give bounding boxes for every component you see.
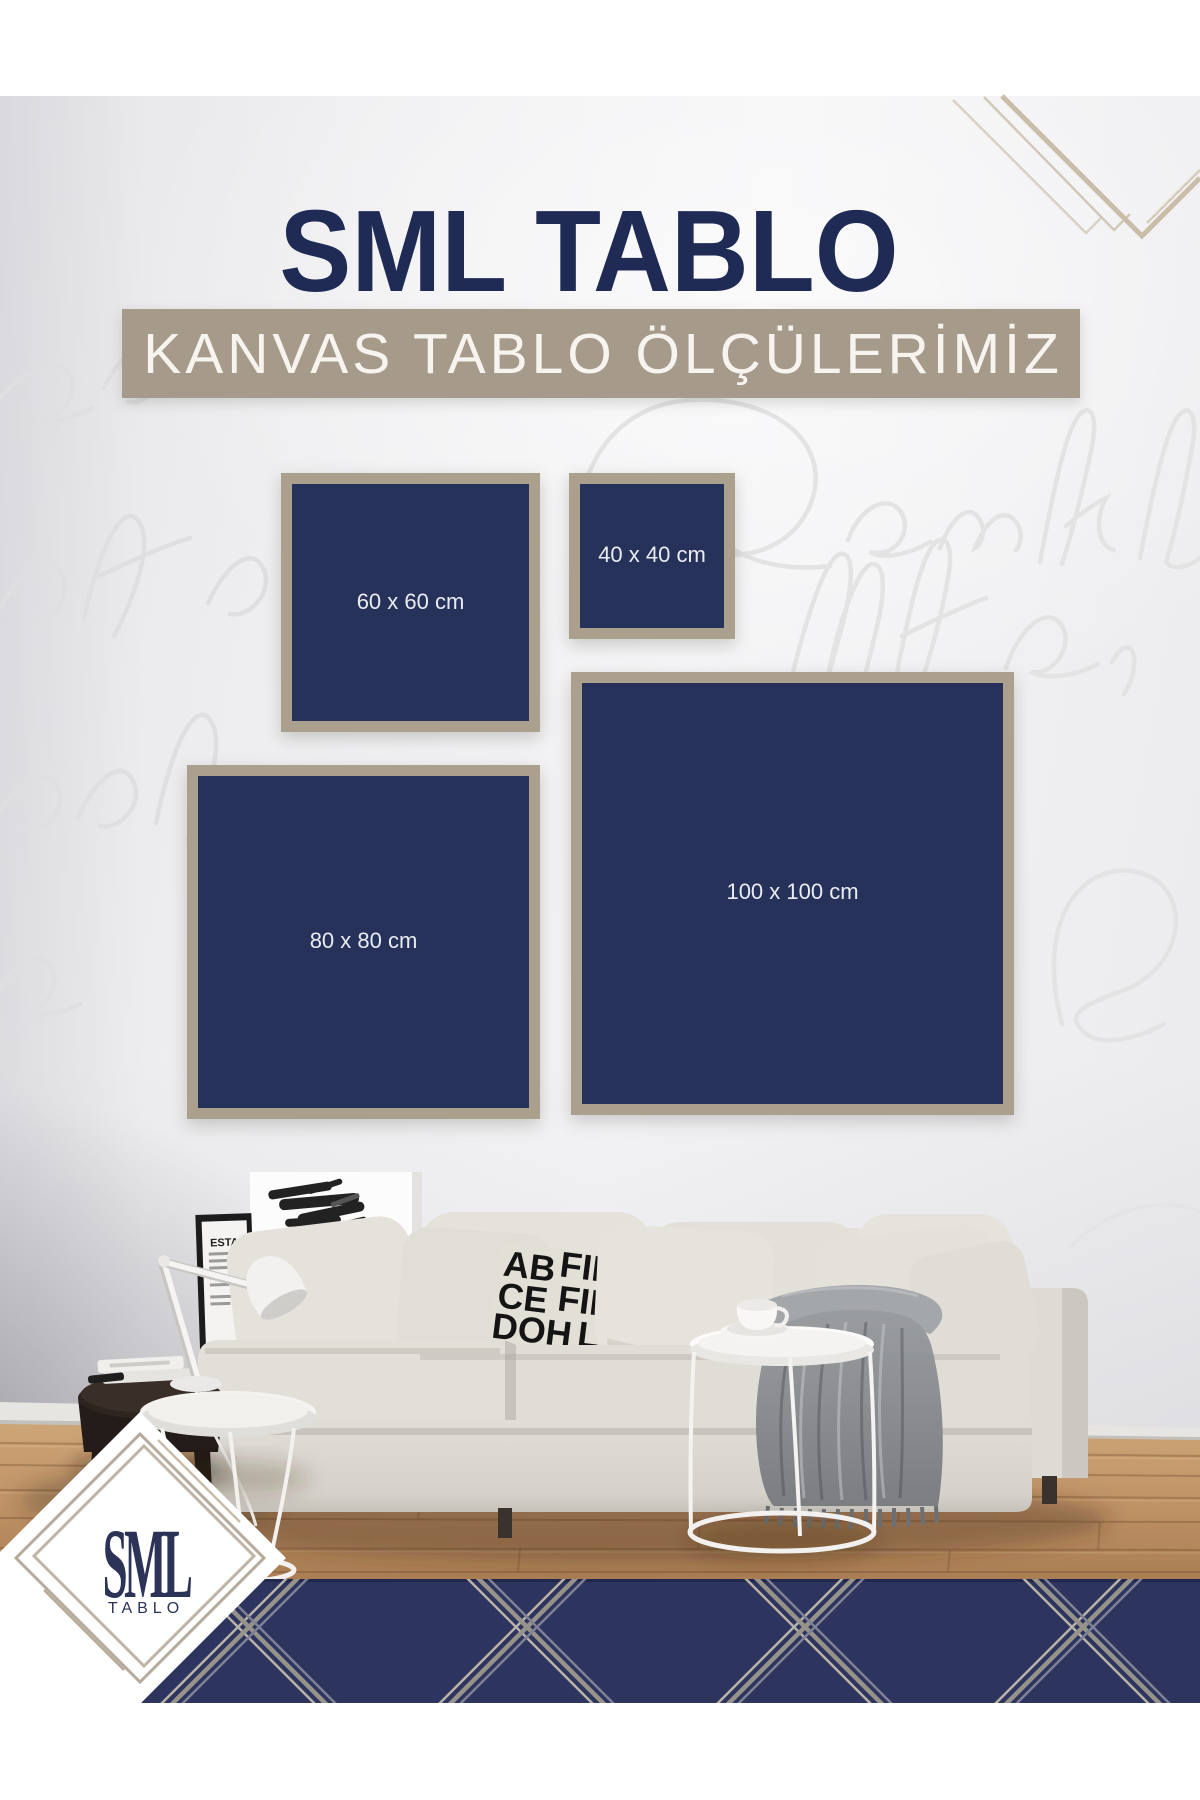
svg-text:TABLO: TABLO <box>108 1600 184 1617</box>
